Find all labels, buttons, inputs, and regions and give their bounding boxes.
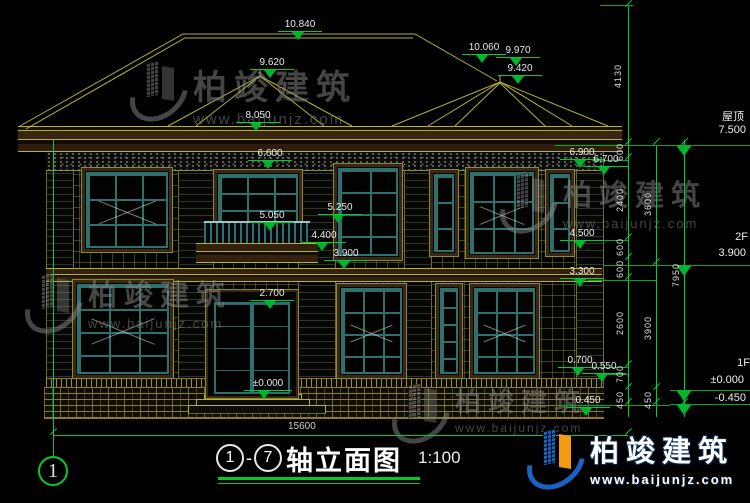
title-text: 轴立面图	[286, 439, 402, 478]
level-marker: 4.400	[302, 230, 346, 241]
cad-elevation-drawing: 柏竣建筑www.baijunjz.com 柏竣建筑www.baijunjz.co…	[0, 0, 750, 503]
dim-chain-line	[628, 5, 629, 417]
level-marker: 10.840	[278, 19, 322, 30]
f1-level-label: 1F	[702, 357, 750, 369]
level-marker: 2.700	[250, 288, 294, 299]
brand-logo-icon	[133, 60, 185, 118]
level-marker: 9.970	[496, 45, 540, 56]
watermark: 柏竣建筑www.baijunjz.com	[28, 272, 232, 331]
level-marker: 3.900	[324, 248, 368, 259]
dim-value: 3600	[643, 176, 655, 232]
level-marker: 0.450	[566, 395, 610, 406]
axis-bubble: 1	[38, 456, 68, 486]
balcony-slab	[196, 243, 318, 263]
watermark-brand: 柏竣建筑	[590, 428, 734, 470]
axis-grid-line	[53, 140, 54, 456]
level-marker: 5.250	[318, 202, 362, 213]
level-marker: 9.620	[250, 57, 294, 68]
dim-value: 2600	[615, 295, 627, 351]
dim-value: 3900	[643, 300, 655, 356]
f1-level-value: ±0.000	[696, 374, 744, 386]
level-triangle-icon	[676, 404, 692, 415]
base-level-value: -0.450	[698, 392, 746, 404]
title-underline	[218, 477, 420, 480]
watermark-brand: 柏竣建筑	[88, 272, 232, 314]
watermark-url: www.baijunjz.com	[88, 316, 232, 331]
f2-level-value: 3.900	[698, 247, 746, 259]
brand-logo-icon	[395, 382, 447, 440]
window-2f-left	[82, 168, 172, 252]
level-marker: 3.300	[560, 266, 604, 277]
dim-value: 450	[615, 387, 627, 413]
brand-logo-icon	[503, 172, 555, 230]
window-grid	[474, 288, 535, 374]
f2-level-label: 2F	[700, 231, 748, 243]
dim-chain-line	[684, 140, 685, 417]
entry-step	[188, 405, 326, 414]
window-1f-mid	[337, 284, 406, 378]
window-grid	[434, 174, 454, 252]
dim-extension-line	[588, 280, 656, 281]
level-marker: ±0.000	[244, 378, 292, 389]
axis-end-bubble: 7	[254, 444, 282, 472]
title-scale: 1:100	[418, 448, 461, 468]
title-underline-thin	[218, 483, 420, 484]
roof-level-label: 屋顶	[696, 108, 744, 124]
level-marker: 5.050	[250, 210, 294, 221]
level-marker: 8.050	[236, 110, 280, 121]
brand-logo-icon	[530, 428, 582, 486]
level-marker: 9.420	[498, 63, 542, 74]
window-2f-tower-left	[430, 170, 458, 256]
window-1f-tower-strip	[436, 284, 462, 378]
drawing-title: 1 - 7 轴立面图 1:100	[216, 441, 461, 475]
dim-value: 2400	[615, 172, 627, 228]
watermark-url: www.baijunjz.com	[590, 472, 734, 487]
dim-total-value: 15600	[288, 421, 316, 432]
axis-range-dash: -	[246, 448, 252, 469]
level-marker: 4.500	[560, 228, 604, 239]
dim-value: 600	[615, 236, 627, 258]
dim-value: 450	[643, 387, 655, 413]
window-1f-tower-right	[470, 284, 539, 378]
dim-chain-line	[656, 145, 657, 417]
dim-value: 600	[615, 139, 627, 165]
brand-logo-icon	[28, 272, 80, 330]
dim-value: 600	[615, 258, 627, 280]
window-grid	[86, 172, 168, 248]
window-grid	[341, 288, 402, 374]
watermark-colored: 柏竣建筑www.baijunjz.com	[530, 428, 734, 487]
dim-value: 700	[615, 362, 627, 386]
axis-start-bubble: 1	[216, 444, 244, 472]
roof-level-value: 7.500	[698, 124, 746, 136]
dim-extension-line	[604, 265, 670, 266]
watermark-brand: 柏竣建筑	[563, 172, 707, 214]
level-marker: 6.600	[248, 148, 292, 159]
dim-value: 4130	[613, 45, 625, 107]
watermark: 柏竣建筑www.baijunjz.com	[503, 172, 707, 231]
level-triangle-icon	[676, 145, 692, 156]
dim-value: 7950	[671, 247, 683, 303]
axis-number: 1	[48, 460, 58, 483]
dim-extension-line	[600, 5, 633, 6]
window-grid	[440, 288, 458, 374]
